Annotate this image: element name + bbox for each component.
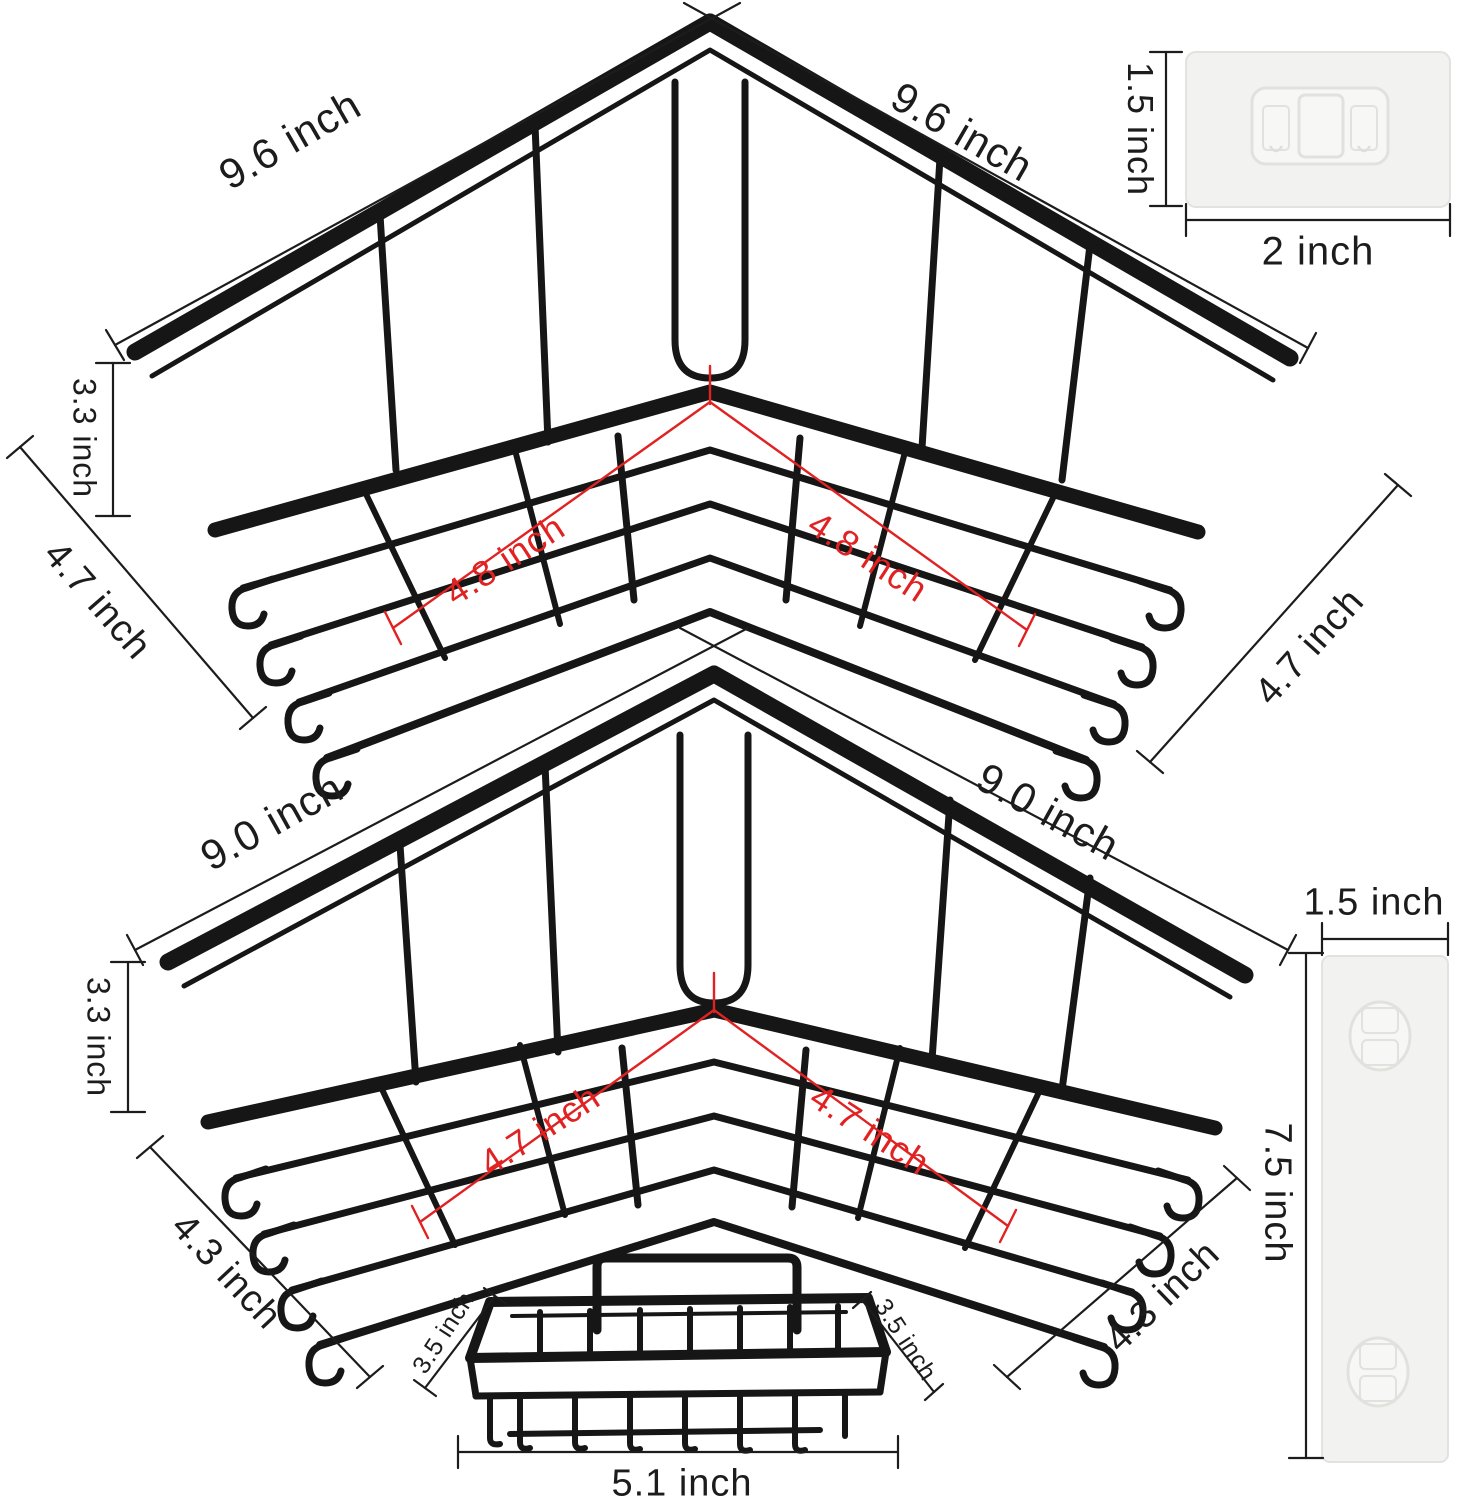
adhesive-strip-drawing xyxy=(1322,956,1448,1462)
dim-label-small-shelf-height: 3.3 inch xyxy=(80,977,117,1097)
dim-label-pad-height: 1.5 inch xyxy=(1119,62,1161,196)
product-dimension-diagram: 9.6 inch 9.6 inch 3.3 inch 4.7 inch 4.8 … xyxy=(0,0,1464,1500)
dim-label-dish-width: 5.1 inch xyxy=(611,1463,752,1500)
dim-label-pad-width: 2 inch xyxy=(1262,230,1375,275)
dim-label-strip-width: 1.5 inch xyxy=(1303,882,1444,925)
adhesive-pad-drawing xyxy=(1186,52,1450,207)
dim-label-large-shelf-height: 3.3 inch xyxy=(66,378,103,498)
dim-label-strip-height: 7.5 inch xyxy=(1256,1122,1299,1263)
soap-dish-drawing xyxy=(470,1258,886,1451)
